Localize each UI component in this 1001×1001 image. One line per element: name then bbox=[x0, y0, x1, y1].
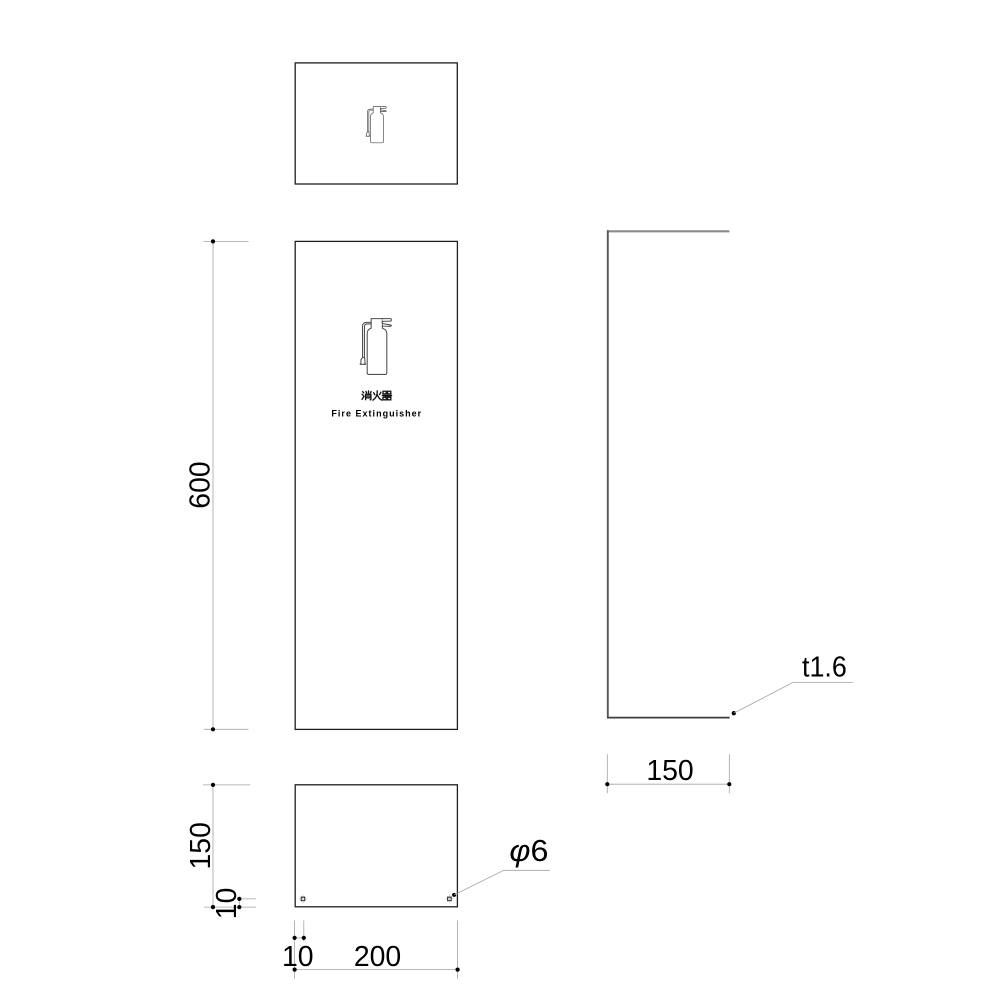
svg-text:150: 150 bbox=[185, 822, 217, 869]
svg-text:t1.6: t1.6 bbox=[802, 652, 847, 684]
svg-text:Fire Extinguisher: Fire Extinguisher bbox=[331, 409, 421, 419]
svg-text:150: 150 bbox=[646, 755, 693, 787]
svg-text:600: 600 bbox=[185, 461, 217, 508]
svg-text:φ6: φ6 bbox=[509, 834, 548, 868]
svg-text:10: 10 bbox=[211, 888, 243, 920]
svg-text:10: 10 bbox=[282, 941, 314, 973]
svg-text:200: 200 bbox=[354, 941, 401, 973]
